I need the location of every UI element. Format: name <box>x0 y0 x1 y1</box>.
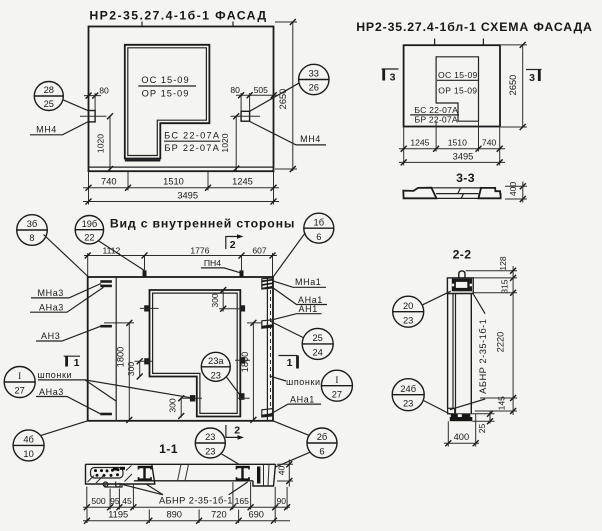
svg-text:23а: 23а <box>208 356 224 366</box>
svg-text:6: 6 <box>319 447 324 457</box>
svg-text:23: 23 <box>403 315 413 325</box>
svg-text:22: 22 <box>84 233 94 243</box>
svg-text:95: 95 <box>110 496 120 506</box>
svg-text:315: 315 <box>500 279 510 294</box>
svg-text:ОР 15-09: ОР 15-09 <box>142 89 190 99</box>
svg-text:690: 690 <box>248 510 264 520</box>
svg-text:1112: 1112 <box>102 246 120 256</box>
svg-text:БС 22-07А: БС 22-07А <box>164 130 220 140</box>
svg-text:500: 500 <box>91 496 106 506</box>
svg-text:1б: 1б <box>314 217 325 227</box>
svg-text:АНа1: АНа1 <box>290 394 315 404</box>
svg-text:1020: 1020 <box>220 133 230 152</box>
svg-text:1020: 1020 <box>96 134 106 153</box>
svg-text:145: 145 <box>497 396 507 411</box>
svg-text:3495: 3495 <box>177 191 198 201</box>
svg-text:3б: 3б <box>27 219 38 229</box>
svg-text:27: 27 <box>15 386 25 396</box>
svg-text:40: 40 <box>277 466 287 476</box>
svg-text:25: 25 <box>313 333 323 343</box>
svg-text:740: 740 <box>101 177 117 187</box>
svg-text:2б: 2б <box>317 432 328 442</box>
svg-text:80: 80 <box>230 85 240 95</box>
svg-text:505: 505 <box>254 85 269 95</box>
svg-text:ОС 15-09: ОС 15-09 <box>141 75 189 85</box>
svg-text:МН4: МН4 <box>36 125 57 135</box>
svg-text:2-2: 2-2 <box>453 248 472 262</box>
svg-text:720: 720 <box>211 510 227 520</box>
svg-text:БР 22-07А: БР 22-07А <box>164 143 220 153</box>
svg-text:2: 2 <box>230 239 236 251</box>
svg-text:МНа3: МНа3 <box>38 288 64 298</box>
svg-text:1510: 1510 <box>163 177 184 187</box>
svg-text:20: 20 <box>403 301 413 311</box>
svg-text:БС 22-07А: БС 22-07А <box>414 105 458 115</box>
svg-text:шпонки: шпонки <box>38 370 73 380</box>
svg-text:АН3: АН3 <box>41 331 60 341</box>
svg-text:10: 10 <box>23 449 33 459</box>
svg-text:300: 300 <box>126 362 136 377</box>
svg-text:26: 26 <box>309 83 319 93</box>
svg-text:ОС 15-09: ОС 15-09 <box>438 70 478 80</box>
svg-text:НР2-35.27.4-1б-1 ФАСАД: НР2-35.27.4-1б-1 ФАСАД <box>89 9 267 23</box>
svg-text:2650: 2650 <box>278 89 288 110</box>
svg-text:2650: 2650 <box>508 75 518 96</box>
svg-text:23: 23 <box>205 447 215 457</box>
svg-text:165: 165 <box>235 496 250 506</box>
svg-text:1510: 1510 <box>448 137 467 147</box>
svg-text:АБНР 2-35-1б-1: АБНР 2-35-1б-1 <box>478 319 488 394</box>
svg-text:400: 400 <box>508 182 518 197</box>
svg-text:МНа1: МНа1 <box>295 277 321 287</box>
svg-text:8: 8 <box>29 233 34 243</box>
svg-text:24б: 24б <box>400 384 416 394</box>
svg-text:ПН4: ПН4 <box>204 258 221 268</box>
svg-text:2: 2 <box>234 424 240 436</box>
svg-text:19б: 19б <box>82 219 98 229</box>
svg-text:3-3: 3-3 <box>456 171 475 185</box>
svg-text:I: I <box>335 376 338 386</box>
svg-text:АНа3: АНа3 <box>39 303 64 313</box>
svg-text:28: 28 <box>44 85 54 95</box>
svg-text:1245: 1245 <box>232 177 253 187</box>
svg-text:890: 890 <box>166 510 182 520</box>
svg-text:1: 1 <box>287 357 293 369</box>
svg-text:23: 23 <box>211 370 221 380</box>
svg-text:400: 400 <box>454 432 470 442</box>
svg-text:ОР 15-09: ОР 15-09 <box>438 85 477 95</box>
svg-text:740: 740 <box>482 137 497 147</box>
svg-text:НР2-35.27.4-1бл-1 СХЕМА ФАСАДА: НР2-35.27.4-1бл-1 СХЕМА ФАСАДА <box>356 20 593 34</box>
svg-text:128: 128 <box>498 256 508 271</box>
svg-text:300: 300 <box>168 398 178 413</box>
svg-text:1800: 1800 <box>240 352 250 373</box>
svg-text:1: 1 <box>74 357 80 369</box>
svg-text:шпонки: шпонки <box>286 377 321 387</box>
svg-text:300: 300 <box>210 293 220 308</box>
svg-text:27: 27 <box>332 389 342 399</box>
svg-text:АНа3: АНа3 <box>39 387 64 397</box>
svg-text:АБНР 2-35-1б-1: АБНР 2-35-1б-1 <box>159 496 233 506</box>
svg-text:23: 23 <box>205 432 215 442</box>
svg-text:80: 80 <box>99 86 109 96</box>
svg-text:МН4: МН4 <box>300 134 321 144</box>
svg-text:Вид с внутренней стороны: Вид с внутренней стороны <box>110 217 295 231</box>
svg-text:24: 24 <box>313 348 323 358</box>
svg-text:23: 23 <box>403 398 413 408</box>
svg-text:4б: 4б <box>23 435 34 445</box>
svg-text:1776: 1776 <box>190 246 209 256</box>
svg-text:I: I <box>18 372 21 382</box>
svg-text:1195: 1195 <box>108 510 128 520</box>
svg-text:1245: 1245 <box>410 137 429 147</box>
svg-text:3495: 3495 <box>453 151 474 161</box>
svg-text:3: 3 <box>390 72 396 84</box>
svg-text:АН1: АН1 <box>299 304 318 314</box>
svg-text:1-1: 1-1 <box>159 442 178 456</box>
svg-text:33: 33 <box>309 69 319 79</box>
svg-text:90: 90 <box>277 496 287 506</box>
svg-text:3: 3 <box>529 72 535 84</box>
svg-text:6: 6 <box>316 232 321 242</box>
svg-text:45: 45 <box>122 496 132 506</box>
svg-text:25: 25 <box>477 424 487 434</box>
svg-text:607: 607 <box>252 245 267 255</box>
svg-text:2220: 2220 <box>495 332 505 353</box>
svg-text:1800: 1800 <box>116 347 126 368</box>
svg-text:25: 25 <box>44 99 54 109</box>
